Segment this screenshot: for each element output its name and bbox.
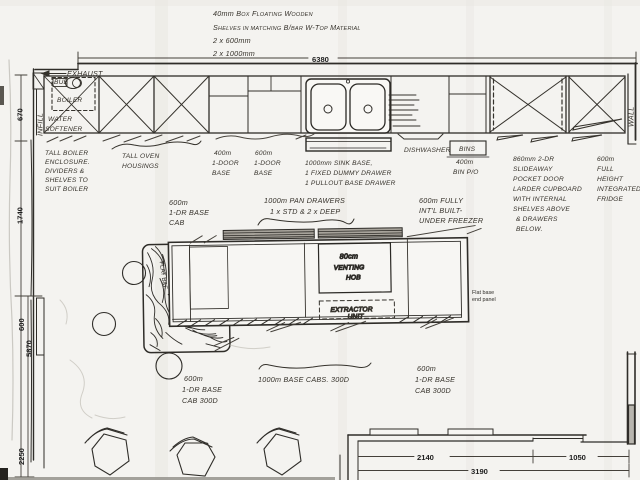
svg-text:INFILL: INFILL: [36, 113, 45, 136]
svg-text:2 x 600mm: 2 x 600mm: [212, 36, 251, 45]
svg-text:BINS: BINS: [459, 146, 476, 153]
svg-text:1 FIXED DUMMY DRAWER: 1 FIXED DUMMY DRAWER: [305, 170, 392, 177]
svg-text:SHELVES ABOVE: SHELVES ABOVE: [513, 206, 570, 213]
svg-text:1000m PAN DRAWERS: 1000m PAN DRAWERS: [264, 196, 345, 205]
svg-text:CAB: CAB: [169, 218, 185, 227]
svg-text:UNDER FREEZER: UNDER FREEZER: [419, 216, 483, 225]
svg-text:SLIDEAWAY: SLIDEAWAY: [513, 166, 553, 173]
svg-text:HOUSINGS: HOUSINGS: [122, 163, 159, 170]
svg-text:BASE: BASE: [212, 170, 231, 177]
svg-text:SUIT BOILER: SUIT BOILER: [45, 186, 88, 193]
svg-text:1000m BASE CABS. 300D: 1000m BASE CABS. 300D: [258, 375, 349, 384]
svg-text:SHELVES TO: SHELVES TO: [45, 177, 88, 184]
svg-text:1-DR BASE: 1-DR BASE: [169, 208, 209, 217]
svg-text:1 PULLOUT BASE DRAWER: 1 PULLOUT BASE DRAWER: [305, 180, 396, 187]
svg-text:1740: 1740: [16, 207, 25, 224]
svg-text:600: 600: [17, 318, 26, 331]
svg-text:ENCLOSURE.: ENCLOSURE.: [45, 159, 90, 166]
svg-text:UNIT: UNIT: [347, 313, 364, 320]
svg-text:SOFTENER: SOFTENER: [45, 126, 83, 133]
svg-text:BIN P/O: BIN P/O: [453, 169, 479, 176]
svg-text:Flat base: Flat base: [472, 290, 494, 296]
svg-text:3190: 3190: [471, 467, 488, 476]
svg-text:1050: 1050: [569, 453, 586, 462]
svg-text:1-DR BASE: 1-DR BASE: [182, 385, 222, 394]
svg-text:INT'L BUILT-: INT'L BUILT-: [419, 206, 463, 215]
svg-text:BELOW.: BELOW.: [516, 226, 543, 233]
svg-text:600m: 600m: [184, 374, 203, 383]
svg-text:FRIDGE: FRIDGE: [597, 196, 624, 203]
svg-text:600m: 600m: [417, 364, 436, 373]
svg-text:& DRAWERS: & DRAWERS: [516, 216, 558, 223]
svg-text:BASE: BASE: [254, 170, 273, 177]
svg-text:WITH INTERNAL: WITH INTERNAL: [513, 196, 567, 203]
svg-text:2140: 2140: [417, 453, 434, 462]
svg-text:LARDER CUPBOARD: LARDER CUPBOARD: [513, 186, 582, 193]
svg-text:1-DOOR: 1-DOOR: [212, 160, 239, 167]
svg-text:5870: 5870: [25, 340, 34, 357]
svg-text:TALL OVEN: TALL OVEN: [122, 153, 160, 160]
svg-text:2250: 2250: [17, 448, 26, 465]
svg-text:1-DOOR: 1-DOOR: [254, 160, 281, 167]
svg-text:400m: 400m: [214, 150, 232, 157]
svg-text:400m: 400m: [456, 159, 474, 166]
svg-text:TALL BOILER: TALL BOILER: [45, 150, 88, 157]
svg-text:HEIGHT: HEIGHT: [597, 176, 624, 183]
svg-text:80cm: 80cm: [340, 251, 359, 260]
svg-text:VENTING: VENTING: [334, 264, 365, 271]
svg-text:CAB 300D: CAB 300D: [415, 386, 451, 395]
svg-text:670: 670: [16, 108, 25, 121]
svg-text:WATER: WATER: [48, 116, 72, 123]
svg-text:HOB: HOB: [346, 274, 361, 281]
svg-text:CAB 300D: CAB 300D: [182, 396, 218, 405]
svg-text:FULL: FULL: [597, 166, 614, 173]
svg-text:WALL: WALL: [627, 107, 636, 127]
svg-text:600m FULLY: 600m FULLY: [419, 196, 464, 205]
svg-text:BUB: BUB: [54, 79, 69, 86]
svg-text:2 x 1000mm: 2 x 1000mm: [212, 49, 255, 58]
svg-text:DISHWASHER: DISHWASHER: [404, 147, 451, 154]
svg-text:1-DR BASE: 1-DR BASE: [415, 375, 455, 384]
svg-text:1000mm SINK BASE,: 1000mm SINK BASE,: [305, 160, 373, 167]
svg-text:600m: 600m: [255, 150, 273, 157]
svg-text:DIVIDERS &: DIVIDERS &: [45, 168, 85, 175]
svg-text:POCKET DOOR: POCKET DOOR: [513, 176, 564, 183]
svg-text:BOILER: BOILER: [57, 97, 82, 104]
svg-text:end panel: end panel: [472, 297, 496, 303]
svg-text:600m: 600m: [169, 198, 188, 207]
svg-text:600m: 600m: [597, 156, 615, 163]
svg-text:1 x STD & 2 x DEEP: 1 x STD & 2 x DEEP: [270, 207, 340, 216]
svg-text:860mm 2-DR: 860mm 2-DR: [513, 156, 554, 163]
svg-text:EXHAUST: EXHAUST: [67, 69, 103, 78]
svg-text:INTEGRATED: INTEGRATED: [597, 186, 640, 193]
